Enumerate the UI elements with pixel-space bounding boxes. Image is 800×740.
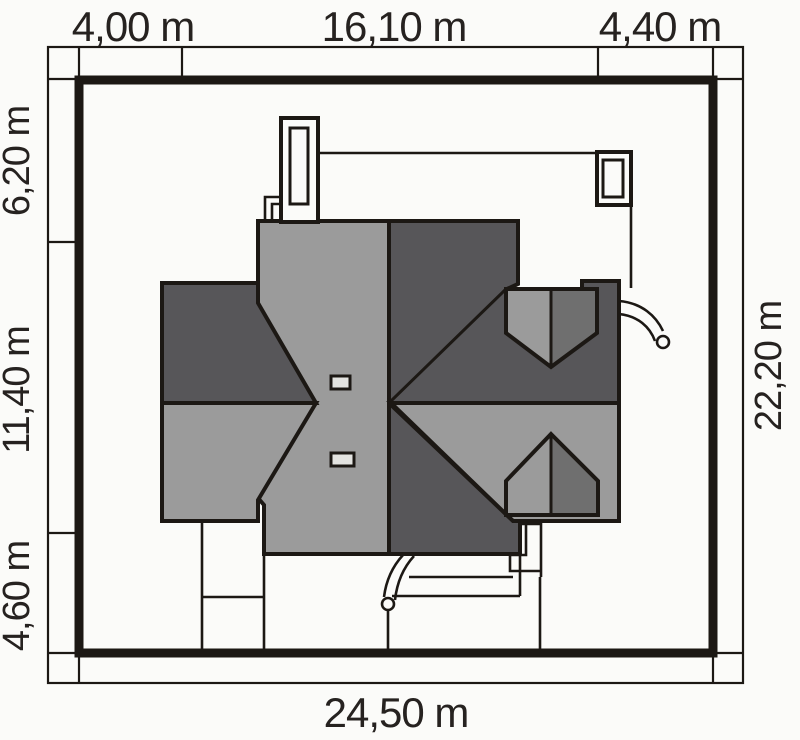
chimney-2-inner (603, 160, 623, 197)
chimney-1-inner (290, 128, 308, 204)
roof-window-1 (331, 376, 350, 389)
dim-label-left-middle: 11,40 m (0, 326, 38, 453)
site-plan-page: 4,00 m 16,10 m 4,40 m 6,20 m 11,40 m 4,6… (0, 0, 800, 740)
path-arc-south-endpoint (382, 598, 394, 610)
dim-label-top-right: 4,40 m (599, 3, 721, 50)
dim-label-left-bottom: 4,60 m (0, 541, 38, 651)
dim-label-right: 22,20 m (748, 301, 790, 431)
dim-label-bottom: 24,50 m (324, 689, 469, 736)
dim-label-top-left: 4,00 m (72, 3, 194, 50)
path-arc-east-endpoint (657, 336, 669, 348)
roof-window-2 (331, 453, 354, 466)
dim-label-top-center: 16,10 m (322, 3, 467, 50)
dim-label-left-top: 6,20 m (0, 106, 38, 216)
site-plan-drawing: 4,00 m 16,10 m 4,40 m 6,20 m 11,40 m 4,6… (0, 0, 800, 740)
